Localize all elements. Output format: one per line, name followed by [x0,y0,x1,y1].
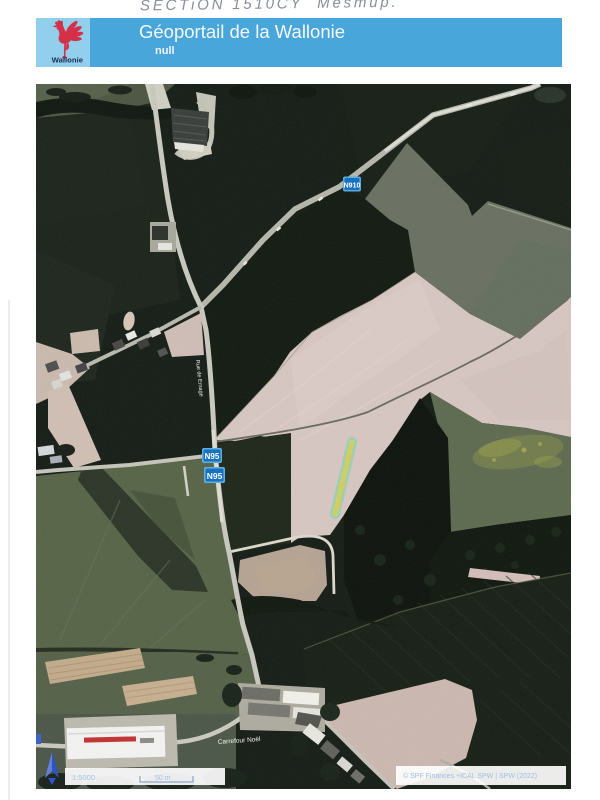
svg-text:Wallonie: Wallonie [52,55,84,64]
